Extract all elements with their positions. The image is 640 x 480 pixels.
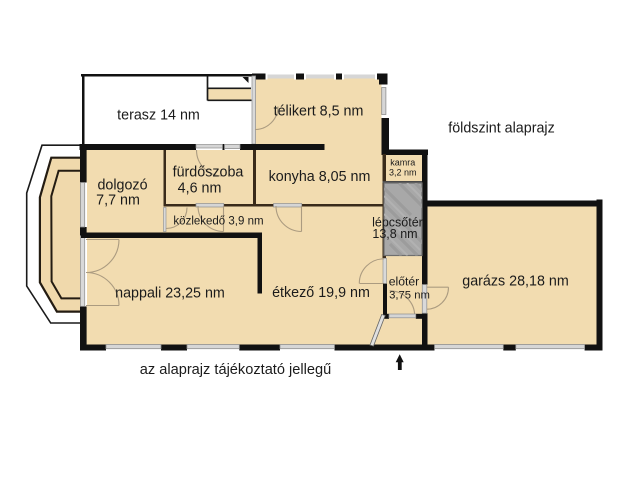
svg-text:3,75 nm: 3,75 nm xyxy=(389,290,430,302)
svg-text:nappali 23,25 nm: nappali 23,25 nm xyxy=(115,285,225,301)
svg-text:földszint alaprajz: földszint alaprajz xyxy=(448,121,555,137)
svg-text:7,7 nm: 7,7 nm xyxy=(96,193,140,209)
svg-text:kamra: kamra xyxy=(390,158,415,168)
svg-text:előtér: előtér xyxy=(389,275,420,289)
svg-text:3,2 nm: 3,2 nm xyxy=(389,167,417,177)
svg-text:4,6 nm: 4,6 nm xyxy=(178,181,222,197)
svg-text:terasz 14 nm: terasz 14 nm xyxy=(117,107,200,123)
svg-text:étkező 19,9 nm: étkező 19,9 nm xyxy=(272,285,370,301)
svg-text:garázs 28,18 nm: garázs 28,18 nm xyxy=(462,274,569,290)
svg-text:konyha 8,05 nm: konyha 8,05 nm xyxy=(269,169,371,185)
svg-text:közlekedő 3,9 nm: közlekedő 3,9 nm xyxy=(173,216,263,228)
svg-text:13,8 nm: 13,8 nm xyxy=(372,227,417,241)
svg-text:télikert 8,5 nm: télikert 8,5 nm xyxy=(274,104,364,120)
svg-text:fürdőszoba: fürdőszoba xyxy=(173,165,244,181)
svg-text:az alaprajz tájékoztató jelleg: az alaprajz tájékoztató jellegű xyxy=(140,362,331,378)
svg-text:dolgozó: dolgozó xyxy=(97,178,147,194)
